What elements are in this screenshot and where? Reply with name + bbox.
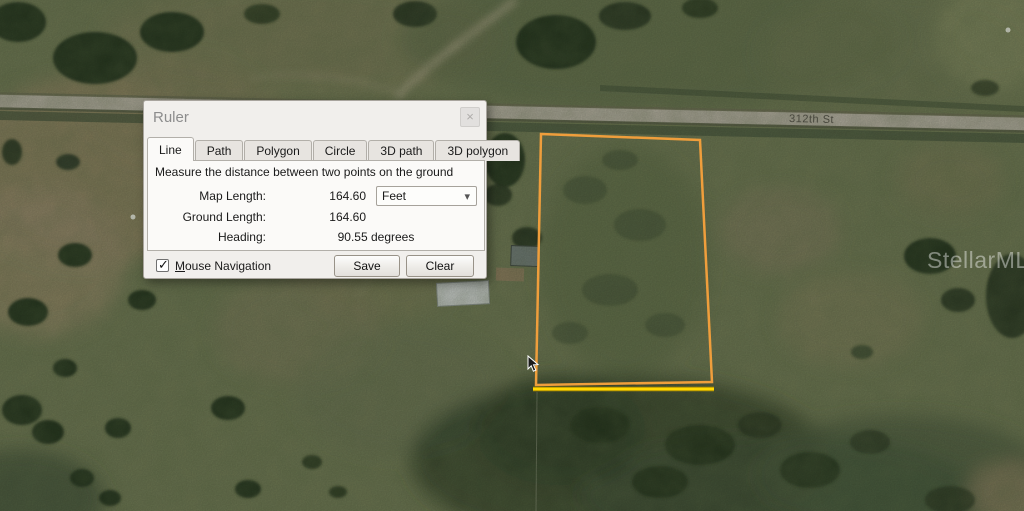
dialog-footer: ✓ Mouse Navigation Save Clear — [144, 251, 486, 280]
ground-length-value: 164.60 — [266, 210, 366, 224]
close-icon[interactable]: × — [460, 107, 480, 127]
unit-selected-value: Feet — [382, 189, 406, 203]
mouse-navigation-label: Mouse Navigation — [175, 259, 271, 273]
heading-value: 90.55 degrees — [266, 230, 486, 244]
chevron-down-icon: ▾ — [464, 190, 470, 203]
clear-button[interactable]: Clear — [406, 255, 474, 277]
tab-circle[interactable]: Circle — [313, 140, 368, 161]
dialog-titlebar[interactable]: Ruler × — [144, 101, 486, 137]
tab-description: Measure the distance between two points … — [155, 165, 477, 179]
ground-length-label: Ground Length: — [155, 210, 266, 224]
line-tab-panel: Measure the distance between two points … — [147, 160, 485, 251]
watermark: StellarMLS — [927, 247, 1024, 273]
mouse-navigation-checkbox[interactable]: ✓ — [156, 259, 169, 272]
dialog-title: Ruler — [153, 109, 189, 126]
tab-polygon[interactable]: Polygon — [244, 140, 311, 161]
map-length-value: 164.60 — [266, 189, 366, 203]
tab-line[interactable]: Line — [147, 137, 194, 161]
road-label: 312th St — [789, 113, 834, 126]
ruler-dialog: Ruler × Line Path Polygon Circle 3D path… — [143, 100, 487, 279]
tab-3d-polygon[interactable]: 3D polygon — [435, 140, 520, 161]
tab-3d-path[interactable]: 3D path — [368, 140, 434, 161]
google-earth-window: 312th St StellarMLS Ruler × Line Path Po… — [0, 0, 1024, 511]
map-length-label: Map Length: — [155, 189, 266, 203]
check-icon: ✓ — [158, 257, 169, 273]
save-button[interactable]: Save — [334, 255, 400, 277]
unit-dropdown[interactable]: Feet ▾ — [376, 186, 477, 206]
tab-path[interactable]: Path — [195, 140, 244, 161]
heading-label: Heading: — [155, 230, 266, 244]
ruler-tabbar: Line Path Polygon Circle 3D path 3D poly… — [147, 137, 521, 161]
